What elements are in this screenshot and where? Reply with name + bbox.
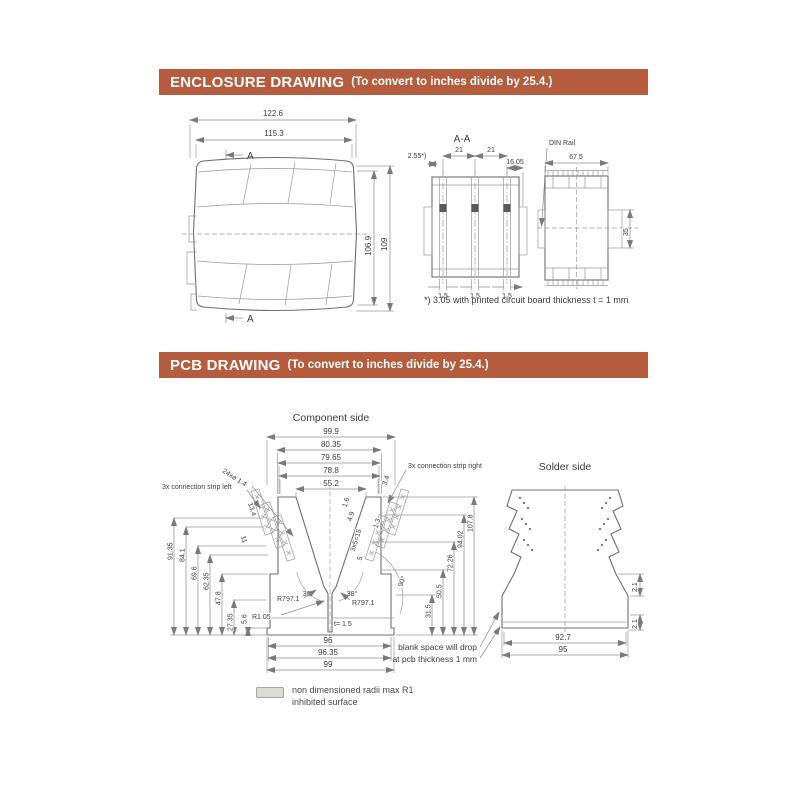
solder-dim-wall-bottom: 2.1: [632, 619, 639, 629]
strip-left-label: 3x connection strip left: [162, 484, 232, 491]
bottom-dim-2: 99: [324, 660, 333, 669]
solder-side-title: Solder side: [539, 461, 592, 473]
connection-strips-left: [251, 489, 294, 561]
section-marker-a-bottom: A: [247, 314, 254, 325]
legend: non dimensioned radii max R1 inhibited s…: [256, 685, 414, 708]
pcb-component-side: Component side 99.9 80.35: [162, 412, 482, 673]
right-dim-3: 94.02: [458, 530, 465, 548]
top-dim-1: 80.35: [321, 440, 342, 449]
enclosure-section-view-aa: A-A 2.55*) 21 21 16.05 1.5 1.5: [408, 134, 527, 300]
left-dim-6: 5.6: [242, 614, 249, 624]
bottom-dim-0: 96: [324, 636, 333, 645]
top-dim-2: 79.65: [321, 453, 342, 462]
enclosure-top-view: 122.6 115.3 A A 106.9 109: [182, 109, 394, 325]
dim-body-width: 115.3: [264, 129, 284, 138]
drop-note-line2: at pcb thickness 1 mm: [392, 654, 477, 664]
left-dim-0: 91.35: [168, 542, 175, 560]
angle-left: 38°: [303, 590, 314, 598]
top-dim-4: 55.2: [323, 479, 339, 488]
pcb-thickness: t= 1.5: [334, 621, 352, 628]
dim-side-width: 67.5: [569, 154, 583, 161]
solder-dim-outer: 95: [559, 645, 568, 654]
left-dim-2: 69.6: [192, 566, 199, 580]
right-dim-0: 31.5: [426, 604, 433, 618]
dim-body-height: 106.9: [364, 235, 373, 256]
section-marker-a-top: A: [247, 151, 254, 162]
right-dim-1: 50.5: [437, 584, 444, 598]
strip-right-label: 3x connection strip right: [408, 463, 482, 470]
solder-dim-wall-top: 2.1: [632, 582, 639, 592]
component-side-title: Component side: [293, 412, 370, 424]
legend-line2: inhibited surface: [292, 697, 414, 709]
strip-left-dim-1: 11: [239, 535, 248, 544]
dim-overall-height: 109: [380, 237, 389, 251]
inhibited-surface-swatch: [256, 687, 284, 698]
section-view-title: A-A: [454, 134, 471, 145]
left-dim-5: 27.35: [228, 613, 235, 631]
pcb-solder-side: Solder side 92.7 95 2.1 2.1 blank space: [392, 461, 644, 664]
connection-strips-right: [365, 489, 408, 561]
technical-drawings: 122.6 115.3 A A 106.9 109 A-A: [0, 0, 800, 800]
din-rail-label: DIN Rail: [549, 140, 576, 147]
right-dim-4: 107.8: [468, 514, 475, 532]
top-dim-0: 99.9: [323, 427, 339, 436]
dim-pitch-right: 21: [487, 147, 495, 154]
dim-side-height: 35: [623, 228, 630, 236]
dim-right-1605: 16.05: [506, 159, 524, 166]
left-dim-4: 47.8: [216, 591, 223, 605]
drop-note-line1: blank space will drop: [398, 642, 477, 652]
radius-right: R797.1: [352, 600, 375, 607]
left-dim-3: 62.35: [204, 572, 211, 590]
enclosure-footnote: *) 3.05 with printed circuit board thick…: [424, 295, 628, 305]
datasheet-page: ENCLOSURE DRAWING (To convert to inches …: [0, 0, 800, 800]
strip-right-dim-0: 3.4: [382, 475, 392, 486]
strip-right-dim-4: 5: [357, 556, 365, 562]
radius-center: R1.05: [252, 614, 271, 621]
angle-right: 38°: [347, 590, 358, 598]
top-dim-3: 78.8: [323, 466, 339, 475]
enclosure-side-view: DIN Rail 67.5 35: [537, 140, 638, 289]
bottom-dim-1: 96.35: [318, 648, 339, 657]
dim-overall-width: 122.6: [263, 109, 284, 118]
legend-line1: non dimensioned radii max R1: [292, 685, 414, 697]
right-dim-2: 72.26: [448, 554, 455, 572]
strip-right-dim-2: 4.9: [347, 511, 357, 522]
solder-dim-inner: 92.7: [555, 633, 571, 642]
dim-pitch-left: 21: [455, 147, 463, 154]
dim-left-255: 2.55*): [408, 153, 427, 160]
left-dim-1: 84.1: [180, 548, 187, 562]
strip-right-dim-1: 1.6: [342, 497, 352, 508]
radius-left: R797.1: [277, 596, 300, 603]
